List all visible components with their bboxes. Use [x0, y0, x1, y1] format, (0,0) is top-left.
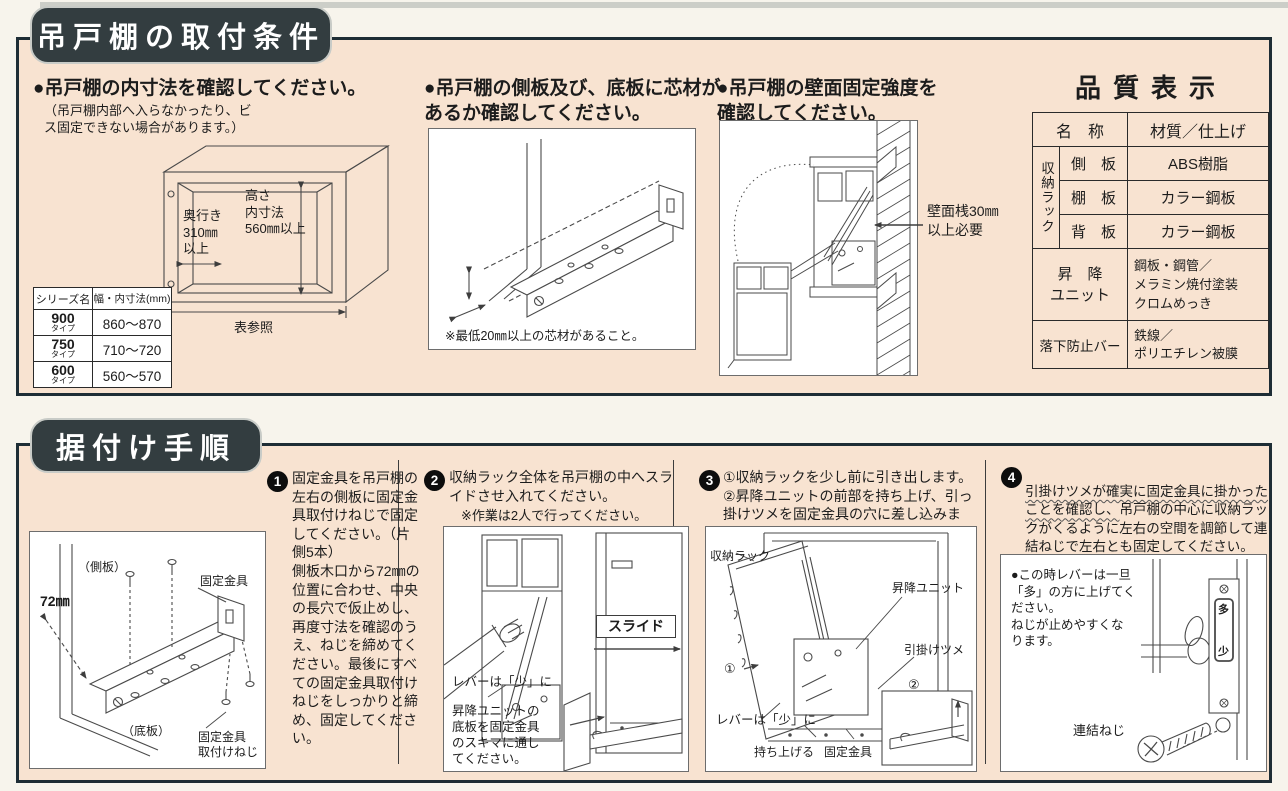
step-1-badge: 1 — [267, 471, 288, 492]
quality-bar-material: 鉄線／ ポリエチレン被膜 — [1128, 321, 1269, 369]
quality-title: 品質表示 — [1032, 68, 1270, 105]
core-material-diagram-box: ※最低20㎜以上の芯材があること。 — [428, 128, 696, 350]
table-row: 落下防止バー 鉄線／ ポリエチレン被膜 — [1033, 321, 1269, 369]
quality-bar-name: 落下防止バー — [1033, 321, 1128, 369]
step-4-badge: 4 — [1001, 467, 1022, 488]
step-2-badge: 2 — [424, 470, 445, 491]
quality-row-material: ABS樹脂 — [1128, 147, 1269, 181]
quality-row-name: 背 板 — [1060, 215, 1128, 249]
series-900-type: タイプ — [34, 325, 92, 333]
series-600-type: タイプ — [34, 377, 92, 385]
lever-position-label: レバーは「少」に — [452, 675, 552, 690]
series-750-range: 710〜720 — [93, 336, 172, 362]
mark-1-label: ① — [724, 661, 736, 676]
lever-position-label: レバーは「少」に — [716, 713, 816, 728]
step-1-text: 固定金具を吊戸棚の左右の側板に固定金具取付けねじで固定してください。（片側5本）… — [292, 469, 420, 748]
step-2-text: 収納ラック全体を吊戸棚の中へスライドさせ入れてください。 — [449, 468, 677, 505]
cabinet-diagram: 奥行き 310㎜ 以上 高さ 内寸法 560㎜以上 表参照 — [149, 136, 407, 336]
step-1-diagram-box: （側板） 72㎜ 固定金具 （底板） 固定金具 取付けねじ — [29, 531, 266, 769]
wall-cleat-arrow — [869, 218, 927, 232]
check-wall-strength-heading: ●吊戸棚の壁面固定強度を 確認してください。 — [717, 76, 937, 126]
width-col-header: 幅・内寸法(mm) — [93, 288, 172, 310]
step-3-badge: 3 — [699, 470, 720, 491]
quality-row-material: カラー鋼板 — [1128, 215, 1269, 249]
table-row: 750タイプ 710〜720 — [34, 336, 172, 362]
side-panel-label: （側板） — [78, 560, 126, 575]
see-table-label: 表参照 — [234, 320, 273, 337]
lever-less-mark: 少 — [1218, 645, 1229, 660]
quality-header-name: 名 称 — [1033, 113, 1128, 147]
procedure-content: 1 固定金具を吊戸棚の左右の側板に固定金具取付けねじで固定してください。（片側5… — [19, 446, 1269, 780]
height-dimension-label: 高さ 内寸法 560㎜以上 — [245, 188, 306, 238]
step-2-note: ※作業は2人で行ってください。 — [461, 505, 647, 524]
step-4-text: 引掛けツメが確実に固定金具に掛かったことを確認し、吊戸棚の中心に収納ラックがくる… — [1025, 465, 1269, 556]
connecting-screw-label: 連結ねじ — [1073, 723, 1125, 738]
conditions-content: ●吊戸棚の内寸法を確認してください。 （吊戸棚内部へ入らなかったり、ビ ス固定で… — [19, 40, 1269, 393]
lift-unit-label: 昇降ユニット — [892, 581, 964, 596]
table-row: 棚 板 カラー鋼板 — [1033, 181, 1269, 215]
quality-header-material: 材質／仕上げ — [1128, 113, 1269, 147]
dimension-72mm-label: 72㎜ — [40, 594, 70, 609]
quality-row-name: 側 板 — [1060, 147, 1128, 181]
step-3-diagram-box: 収納ラック 昇降ユニット 引掛けツメ ① ② レバーは「少」に 持ち上げる 固定… — [705, 526, 977, 772]
wall-section-drawing — [720, 121, 917, 375]
step-4-diagram-box: ●この時レバーは一旦 「多」の方に上げてく ださい。 ねじが止めやすくな ります… — [1000, 554, 1267, 772]
table-row: 背 板 カラー鋼板 — [1033, 215, 1269, 249]
core-material-caption: ※最低20㎜以上の芯材があること。 — [445, 325, 644, 344]
mark-2-label: ② — [908, 677, 920, 692]
lift-up-label: 持ち上げる — [754, 745, 814, 760]
bracket-label: 固定金具 — [200, 574, 248, 589]
quality-lift-name: 昇 降 ユニット — [1033, 249, 1128, 321]
series-col-header: シリーズ名 — [34, 288, 93, 310]
wall-fixing-diagram-box — [719, 120, 918, 376]
quality-table: 名 称 材質／仕上げ 収納ラック 側 板 ABS樹脂 棚 板 カラー鋼板 背 板… — [1032, 112, 1269, 369]
step-2-diagram-box: スライド レバーは「少」に 昇降ユニットの 底板を固定金具 のスキマに通し てく… — [443, 526, 689, 772]
quality-row-name: 棚 板 — [1060, 181, 1128, 215]
table-row: 収納ラック 側 板 ABS樹脂 — [1033, 147, 1269, 181]
lever-more-mark: 多 — [1218, 603, 1229, 618]
quality-lift-material: 鋼板・鋼管／ メラミン焼付塗装 クロムめっき — [1128, 249, 1269, 321]
check-inner-dimensions-note: （吊戸棚内部へ入らなかったり、ビ ス固定できない場合があります。） — [44, 103, 251, 136]
depth-dimension-label: 奥行き 310㎜ 以上 — [183, 208, 222, 258]
series-size-table: シリーズ名 幅・内寸法(mm) 900タイプ 860〜870 750タイプ 71… — [33, 287, 172, 388]
slide-label: スライド — [596, 615, 676, 638]
check-core-material-heading: ●吊戸棚の側板及び、底板に芯材が あるか確認してください。 — [424, 76, 720, 126]
lever-up-note: ●この時レバーは一旦 「多」の方に上げてく ださい。 ねじが止めやすくな ります… — [1011, 567, 1136, 650]
table-row: 昇 降 ユニット 鋼板・鋼管／ メラミン焼付塗装 クロムめっき — [1033, 249, 1269, 321]
wall-cleat-label: 壁面桟30㎜ 以上必要 — [927, 202, 999, 240]
bottom-panel-label: （底板） — [122, 724, 170, 739]
series-900-range: 860〜870 — [93, 310, 172, 336]
series-600-range: 560〜570 — [93, 362, 172, 388]
quality-group-label: 収納ラック — [1033, 147, 1060, 249]
bracket-core-drawing — [429, 129, 695, 349]
bottom-plate-hint: 昇降ユニットの 底板を固定金具 のスキマに通し てください。 — [452, 703, 540, 767]
check-inner-dimensions-heading: ●吊戸棚の内寸法を確認してください。 — [33, 76, 366, 101]
quality-row-material: カラー鋼板 — [1128, 181, 1269, 215]
bracket-label: 固定金具 — [824, 745, 872, 760]
hook-claw-label: 引掛けツメ — [904, 643, 964, 658]
series-750-type: タイプ — [34, 351, 92, 359]
table-row: 900タイプ 860〜870 — [34, 310, 172, 336]
step-divider — [985, 460, 986, 764]
bracket-screw-label: 固定金具 取付けねじ — [198, 730, 258, 760]
instruction-sheet: { "s1": { "title": "吊戸棚の取付条件", "i1": { "… — [0, 0, 1288, 791]
storage-rack-label: 収納ラック — [710, 549, 770, 564]
table-row: 600タイプ 560〜570 — [34, 362, 172, 388]
